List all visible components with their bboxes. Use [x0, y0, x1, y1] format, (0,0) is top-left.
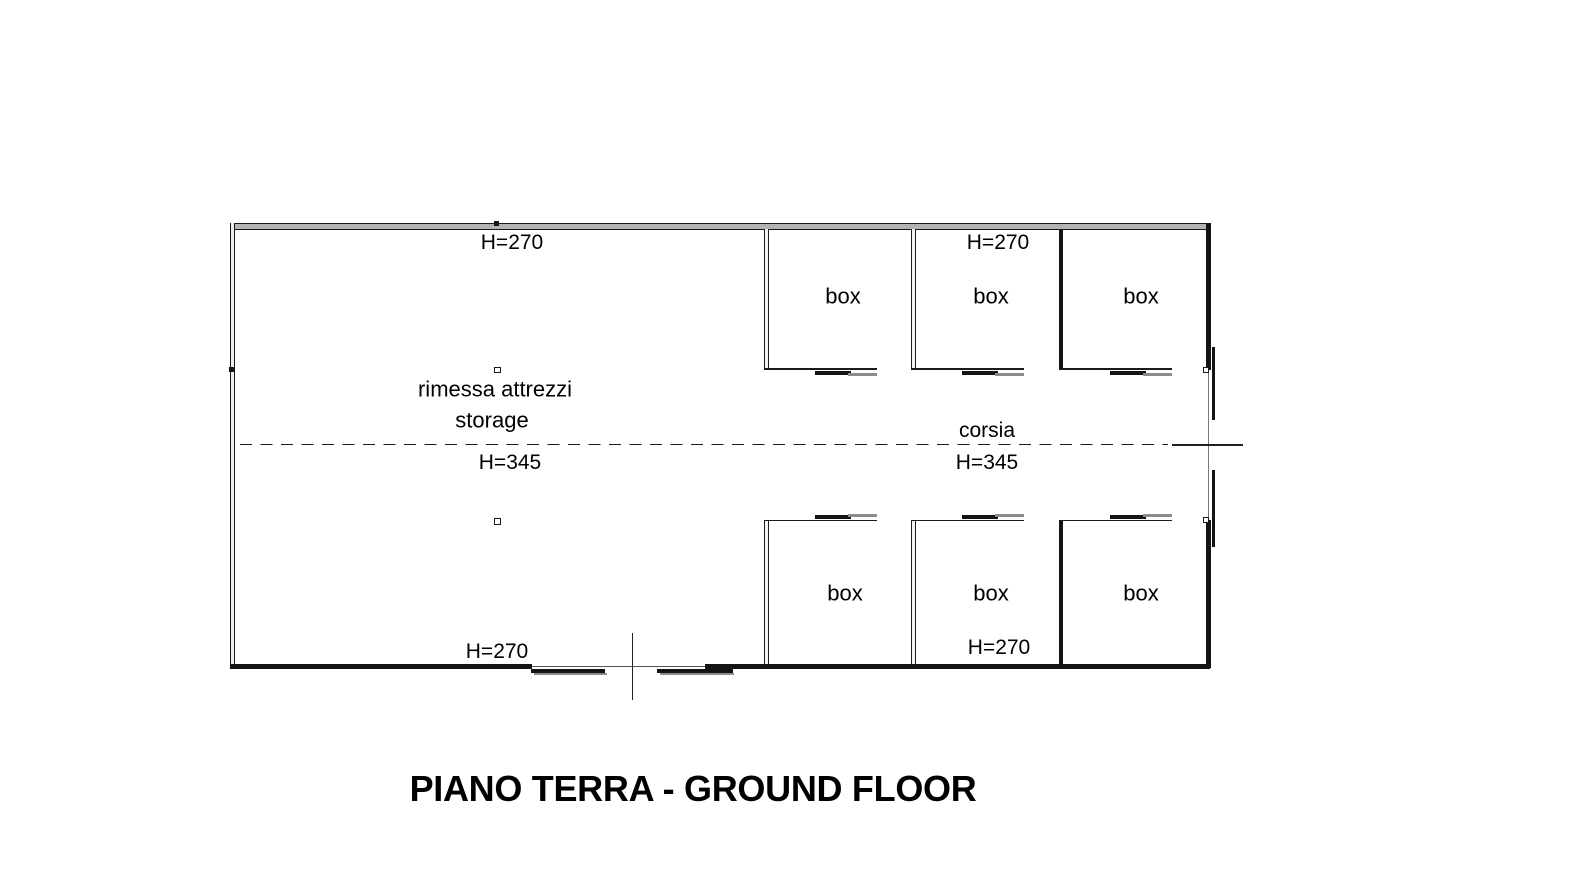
- room-label-box-bottom-2: box: [973, 580, 1008, 605]
- box-bottom-2-door-leaf: [962, 515, 998, 519]
- box-bottom-3-door-rail: [1143, 514, 1172, 517]
- outer-wall-right-upper: [1206, 223, 1211, 370]
- right-wall-joint-upper: [1203, 367, 1209, 373]
- storage-label-italian: rimessa attrezzi: [418, 376, 572, 401]
- outer-wall-bottom-right: [705, 664, 1210, 669]
- box-top-1-front-wall: [764, 368, 877, 370]
- box-top-3-front-wall: [1059, 368, 1172, 370]
- partition-top-3: [1059, 229, 1063, 369]
- storage-label-english: storage: [455, 407, 528, 432]
- left-wall-joint-marker: [229, 367, 235, 372]
- partition-bottom-3: [1059, 521, 1063, 664]
- partition-top-2: [911, 229, 916, 369]
- height-label-top-right: H=270: [967, 231, 1029, 255]
- right-door-leaf-upper: [1212, 347, 1216, 420]
- outer-wall-right-lower: [1206, 520, 1211, 668]
- corridor-centerline-dashed: [240, 444, 1168, 446]
- corridor-label: corsia: [959, 419, 1015, 443]
- box-top-1-door-leaf: [815, 371, 851, 375]
- top-wall-joint-marker: [494, 221, 499, 226]
- box-bottom-1-door-rail: [848, 514, 877, 517]
- room-label-box-top-1: box: [825, 283, 860, 308]
- partition-bottom-2: [911, 521, 916, 664]
- box-top-2-door-rail: [995, 373, 1024, 376]
- box-bottom-2-door-rail: [995, 514, 1024, 517]
- pillar-marker-lower: [494, 518, 501, 525]
- box-top-1-door-rail: [848, 373, 877, 376]
- right-door-leaf-lower: [1212, 470, 1216, 547]
- room-label-box-bottom-1: box: [827, 580, 862, 605]
- bottom-door-leaf-left-rail: [534, 673, 607, 676]
- box-top-2-front-wall: [911, 368, 1024, 370]
- box-top-2-door-leaf: [962, 371, 998, 375]
- box-bottom-1-door-leaf: [815, 515, 851, 519]
- outer-wall-left: [230, 223, 235, 668]
- box-top-3-door-rail: [1143, 373, 1172, 376]
- corridor-centerline-extension: [1172, 444, 1243, 446]
- floor-plan-drawing: H=270 H=270 box box box rimessa attrezzi…: [0, 0, 1592, 894]
- box-bottom-1-front-wall: [764, 520, 877, 522]
- drawing-title: PIANO TERRA - GROUND FLOOR: [410, 768, 977, 810]
- height-label-top-left: H=270: [481, 231, 543, 255]
- bottom-door-leaf-right-rail: [660, 673, 734, 676]
- height-label-bottom-left: H=270: [466, 640, 528, 664]
- partition-top-1: [764, 229, 769, 369]
- bottom-door-track: [532, 666, 705, 668]
- room-label-box-top-2: box: [973, 283, 1008, 308]
- bottom-door-axis-line: [632, 633, 633, 700]
- room-label-box-bottom-3: box: [1123, 580, 1158, 605]
- box-top-3-door-leaf: [1110, 371, 1146, 375]
- height-label-corridor: H=345: [956, 451, 1018, 475]
- right-wall-joint-lower: [1203, 517, 1209, 523]
- height-label-bottom-right: H=270: [968, 636, 1030, 660]
- box-bottom-3-door-leaf: [1110, 515, 1146, 519]
- outer-wall-bottom-left: [230, 664, 532, 669]
- height-label-storage: H=345: [479, 451, 541, 475]
- room-label-box-top-3: box: [1123, 283, 1158, 308]
- partition-bottom-1: [764, 521, 769, 664]
- box-bottom-3-front-wall: [1059, 520, 1172, 522]
- pillar-marker-upper: [494, 367, 501, 374]
- box-bottom-2-front-wall: [911, 520, 1024, 522]
